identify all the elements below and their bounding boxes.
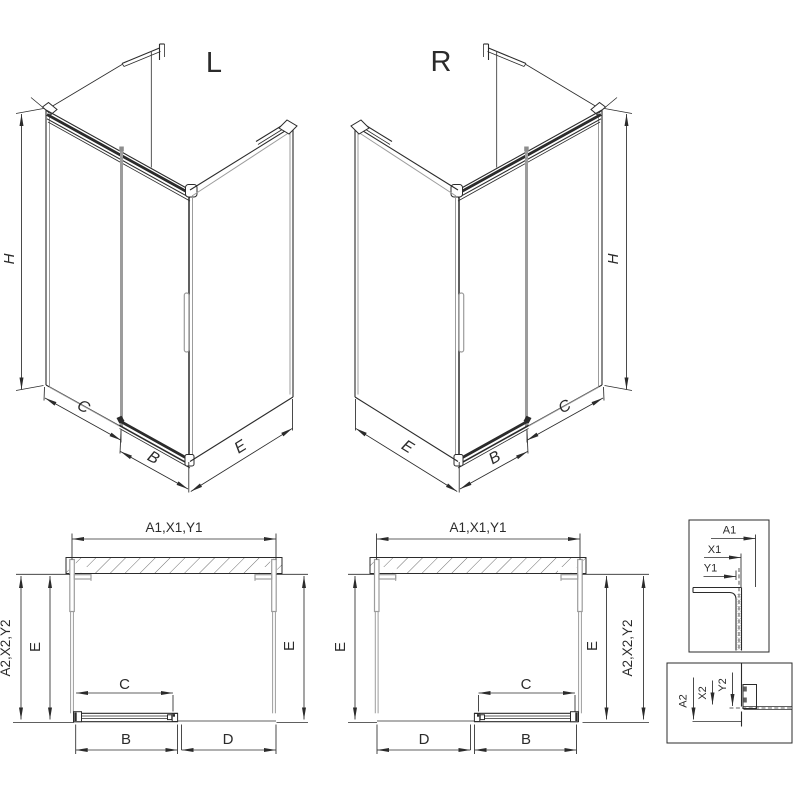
detail-top-x-label: X1 bbox=[708, 544, 721, 556]
plan-left-wall bbox=[66, 558, 282, 574]
plan-right-dimensions: A1,X1,Y1 E E A2,X2,Y2 C D B bbox=[332, 520, 649, 754]
iso-right-dimensions: H C B E bbox=[356, 109, 633, 493]
detail-top-a-label: A1 bbox=[723, 525, 736, 537]
plan-right-door-dim-label: C bbox=[521, 676, 532, 693]
detail-bottom-a-label: A2 bbox=[678, 694, 690, 707]
iso-right-height-dim-label: H bbox=[605, 253, 622, 264]
plan-left-side-right-dim-label: E bbox=[281, 641, 298, 651]
iso-view-left: L bbox=[1, 44, 297, 493]
plan-right-wall bbox=[370, 558, 586, 574]
iso-left-door-dim-label: B bbox=[144, 448, 162, 468]
plan-right-glass-panels bbox=[375, 560, 583, 714]
iso-right-side-dim-label: E bbox=[398, 437, 416, 457]
shower-enclosure-technical-drawing: L bbox=[0, 0, 800, 800]
iso-right-door-dim-label: B bbox=[486, 448, 504, 468]
plan-left-bottom-left-dim-label: B bbox=[121, 731, 131, 748]
plan-left-outer-dim-label: A2,X2,Y2 bbox=[0, 619, 13, 676]
plan-right-top-dim-label: A1,X1,Y1 bbox=[449, 520, 506, 535]
iso-right-title: R bbox=[431, 46, 452, 78]
plan-left-door-dim-label: C bbox=[119, 676, 130, 693]
detail-bottom-y-label: Y2 bbox=[717, 678, 729, 691]
detail-bottom-x-label: X2 bbox=[697, 686, 709, 699]
iso-left-frame bbox=[31, 44, 297, 468]
plan-right-side-left-dim-label: E bbox=[332, 642, 349, 652]
drawing-sheet: L bbox=[0, 0, 800, 800]
plan-right-bottom-left-dim-label: D bbox=[419, 731, 430, 748]
iso-view-right: R bbox=[351, 44, 632, 493]
plan-left-top-dim-label: A1,X1,Y1 bbox=[145, 520, 202, 535]
plan-view-left: A1,X1,Y1 A2,X2,Y2 E E C B D bbox=[0, 520, 308, 754]
detail-view-bottom: A2 X2 Y2 bbox=[667, 663, 792, 743]
iso-right-frame bbox=[351, 44, 617, 468]
plan-left-door-rail bbox=[74, 712, 277, 722]
detail-top-y-label: Y1 bbox=[704, 563, 717, 575]
plan-right-side-right-dim-label: E bbox=[584, 641, 601, 651]
iso-left-title: L bbox=[206, 47, 222, 79]
detail-view-top: A1 X1 Y1 bbox=[689, 520, 769, 652]
plan-right-door-rail bbox=[377, 712, 579, 722]
plan-left-side-left-dim-label: E bbox=[27, 642, 44, 652]
plan-view-right: A1,X1,Y1 E E A2,X2,Y2 C D B bbox=[332, 520, 649, 754]
iso-left-side-dim-label: E bbox=[232, 437, 250, 457]
iso-left-height-dim-label: H bbox=[1, 253, 18, 264]
plan-left-bottom-right-dim-label: D bbox=[223, 731, 234, 748]
iso-left-fixed-dim-label: C bbox=[74, 397, 93, 418]
plan-left-dimensions: A1,X1,Y1 A2,X2,Y2 E E C B D bbox=[0, 520, 308, 754]
plan-left-glass-panels bbox=[70, 560, 276, 714]
iso-right-fixed-dim-label: C bbox=[556, 397, 575, 418]
plan-right-bottom-right-dim-label: B bbox=[521, 731, 531, 748]
plan-right-outer-dim-label: A2,X2,Y2 bbox=[620, 619, 635, 676]
